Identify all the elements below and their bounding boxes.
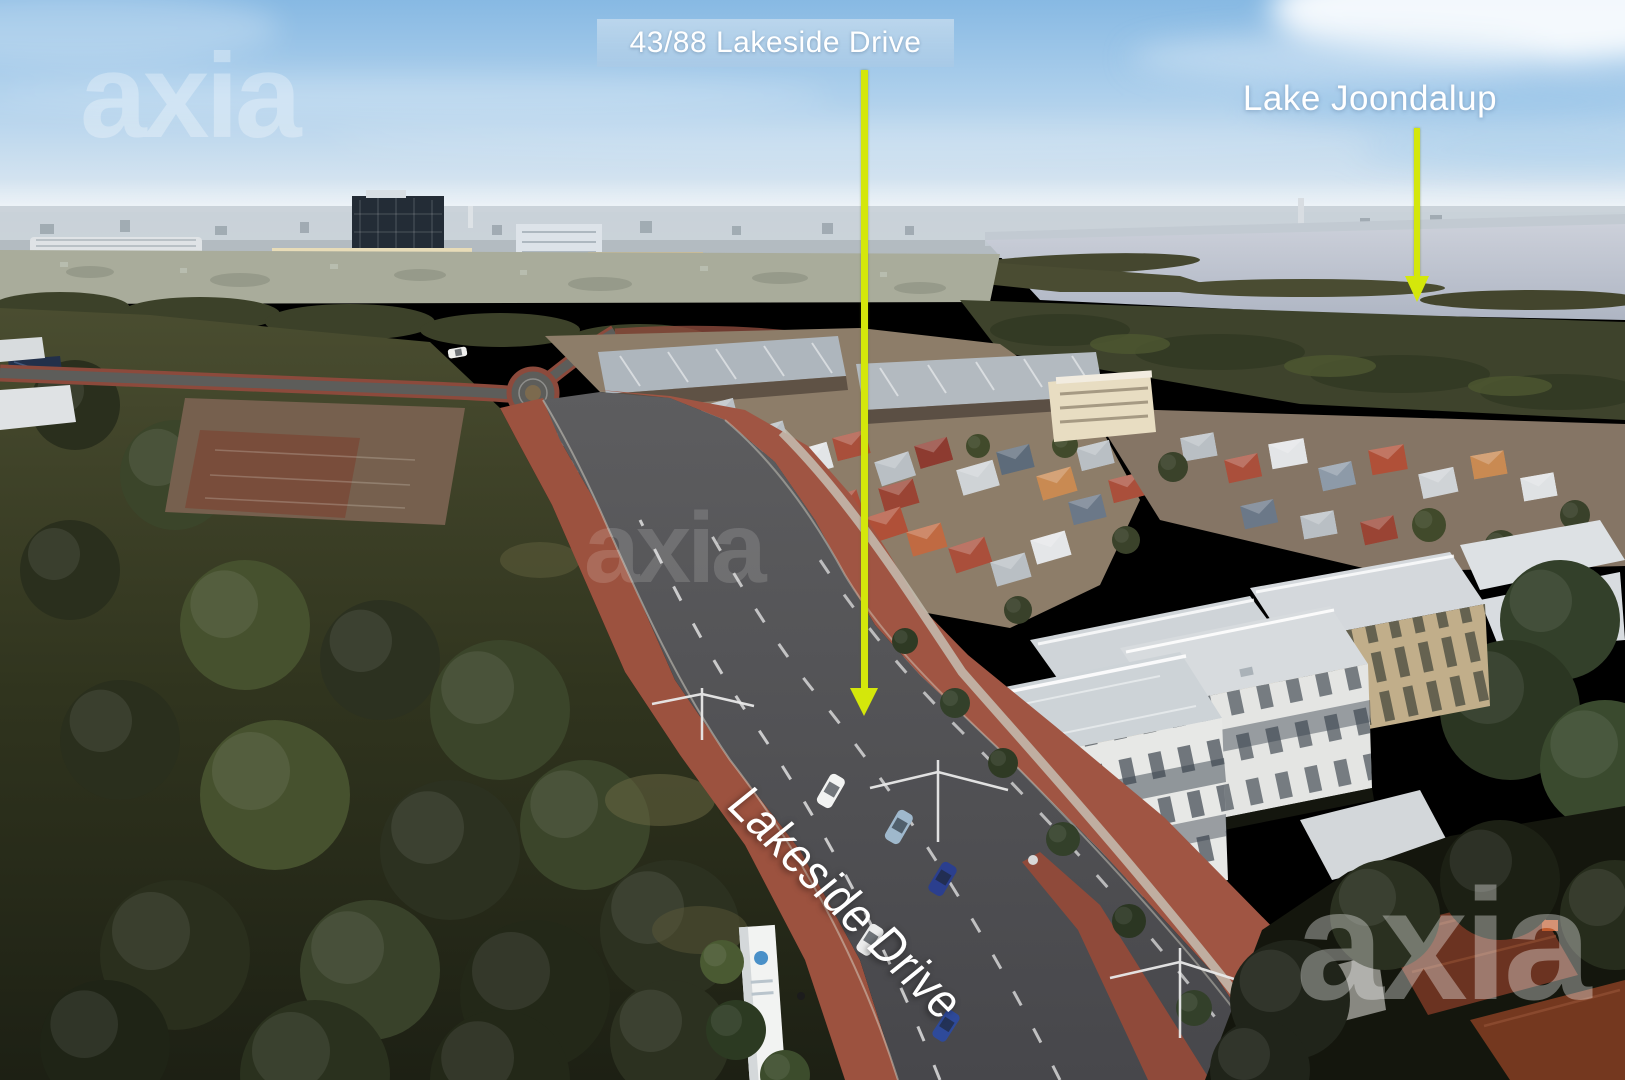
property-arrow-head (850, 688, 878, 716)
property-arrow-line (861, 70, 868, 688)
lake-arrow-head (1405, 276, 1429, 302)
lake-arrow-line (1414, 128, 1420, 276)
scene-svg (0, 0, 1625, 1080)
lake-name-label: Lake Joondalup (1205, 79, 1535, 119)
property-address-label: 43/88 Lakeside Drive (597, 19, 954, 67)
aerial-photo: axia axia axia 43/88 Lakeside Drive Lake… (0, 0, 1625, 1080)
